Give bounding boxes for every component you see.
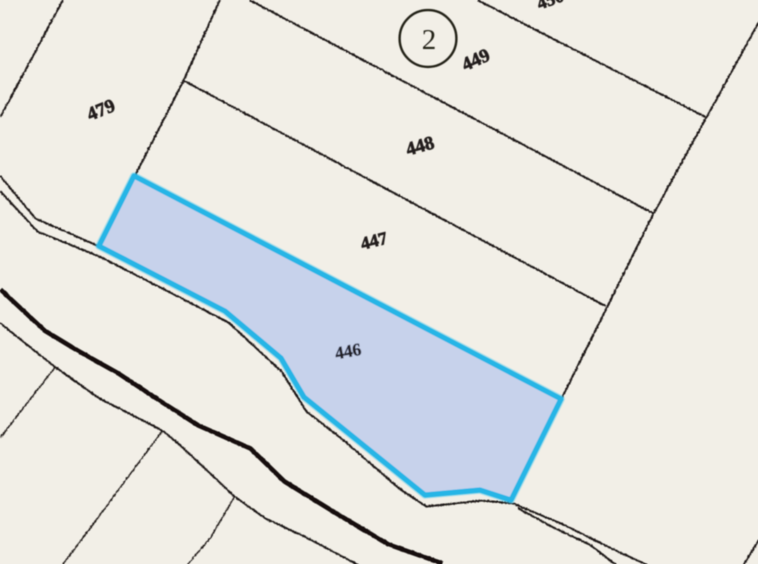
svg-text:2: 2 <box>422 24 437 56</box>
